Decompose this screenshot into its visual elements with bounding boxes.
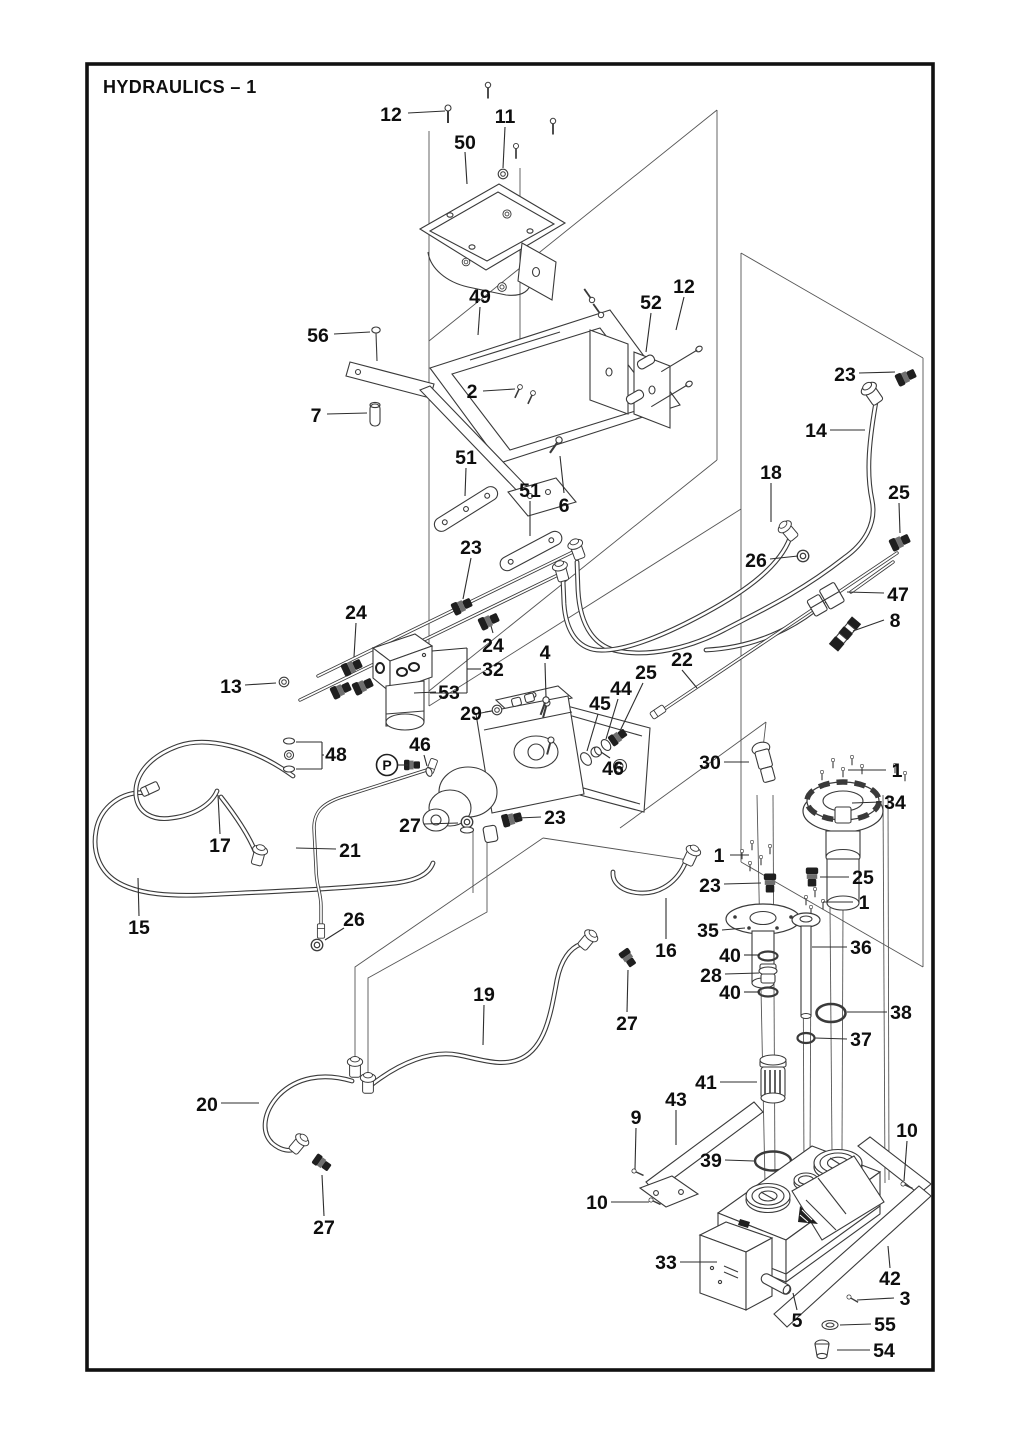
callout-leader-52 [646, 313, 651, 352]
callout-leader-46 [424, 755, 427, 766]
elbow-19 [576, 927, 601, 953]
level-tube-36 [792, 913, 820, 1019]
fitting-48 [284, 750, 293, 759]
callout-leader-3 [857, 1298, 894, 1300]
callout-leader-23 [859, 372, 895, 373]
callout-52: 52 [640, 292, 662, 314]
callout-15: 15 [128, 917, 150, 939]
fitting-30 [751, 740, 779, 783]
elbow-a [566, 537, 587, 562]
callout-49: 49 [469, 286, 491, 308]
callout-leader-56 [334, 332, 370, 334]
callout-26: 26 [343, 909, 365, 931]
fitting-23b [501, 810, 524, 828]
callout-38: 38 [890, 1002, 912, 1024]
pipe-21 [314, 768, 433, 928]
callout-leader-55 [840, 1324, 871, 1325]
callout-13: 13 [220, 676, 242, 698]
callout-14: 14 [805, 420, 827, 442]
callout-42: 42 [879, 1268, 901, 1290]
plug-13 [279, 677, 289, 687]
callout-12: 12 [673, 276, 695, 298]
callout-23: 23 [834, 364, 856, 386]
screw-cluster-1c [804, 887, 824, 915]
callout-36: 36 [850, 937, 872, 959]
fitting-27b [618, 947, 638, 968]
callout-51: 51 [519, 480, 541, 502]
callout-21: 21 [339, 840, 361, 862]
callout-18: 18 [760, 462, 782, 484]
callout-27: 27 [313, 1217, 335, 1239]
callout-bracket-line [432, 648, 467, 651]
callout-leader-13 [245, 683, 276, 685]
callout-leader-19 [483, 1005, 484, 1045]
bracket-43 [646, 1102, 763, 1192]
callout-12: 12 [380, 104, 402, 126]
coupling-21-bottom [317, 924, 324, 938]
callout-48: 48 [325, 744, 347, 766]
hose-20 [265, 1077, 352, 1150]
callout-40: 40 [719, 982, 741, 1004]
callout-30: 30 [699, 752, 721, 774]
nozzle-8 [829, 616, 861, 651]
callout-24: 24 [345, 602, 367, 624]
callout-25: 25 [635, 662, 657, 684]
port-marker-p: P [377, 755, 409, 776]
callout-leader-27 [627, 970, 628, 1012]
callout-43: 43 [665, 1089, 687, 1111]
callout-3: 3 [900, 1288, 911, 1310]
callout-37: 37 [850, 1029, 872, 1051]
callout-46: 46 [409, 734, 431, 756]
fitting-27c [311, 1153, 332, 1173]
callout-7: 7 [311, 405, 322, 427]
callout-11: 11 [495, 106, 516, 128]
washer-48b [284, 766, 295, 772]
callout-32: 32 [482, 659, 504, 681]
washer-55 [822, 1321, 838, 1330]
callout-1: 1 [714, 845, 725, 867]
fitting-23-top-right [894, 367, 918, 387]
filter-32-53 [373, 634, 432, 730]
callout-4: 4 [540, 642, 551, 664]
callout-leader-25 [899, 503, 900, 533]
washer-48a [284, 738, 295, 744]
callout-41: 41 [695, 1072, 717, 1094]
callout-22: 22 [671, 649, 693, 671]
nut-27a [461, 816, 473, 828]
hydraulics-diagram: HYDRAULICS – 1 [0, 0, 1024, 1435]
callout-leader-51 [465, 468, 466, 496]
elbow-14 [858, 379, 885, 408]
callout-27: 27 [616, 1013, 638, 1035]
callout-leader-39 [725, 1160, 754, 1161]
callout-45: 45 [589, 693, 611, 715]
callout-leader-42 [888, 1246, 890, 1268]
fitting-23d [764, 874, 776, 893]
nut-26b [311, 939, 323, 951]
callout-46: 46 [602, 758, 624, 780]
callout-leader-9 [635, 1128, 636, 1169]
callout-5: 5 [792, 1310, 803, 1332]
callout-leader-12 [408, 111, 445, 113]
callout-8: 8 [890, 610, 901, 632]
callout-leader-27 [322, 1175, 324, 1216]
callout-44: 44 [610, 678, 632, 700]
callout-leader-7 [327, 413, 367, 414]
screw-9 [631, 1168, 644, 1177]
fitting-23a [450, 596, 474, 616]
screw-3 [846, 1294, 859, 1304]
callout-56: 56 [307, 325, 329, 347]
callout-leader-12 [676, 297, 684, 330]
screw-cluster-1b [740, 840, 771, 871]
callout-29: 29 [460, 703, 482, 725]
callout-19: 19 [473, 984, 495, 1006]
callout-39: 39 [700, 1150, 722, 1172]
hose-15 [95, 793, 433, 896]
callout-34: 34 [884, 792, 906, 814]
o-ring-37 [798, 1033, 815, 1043]
callout-35: 35 [697, 920, 719, 942]
callout-51: 51 [455, 447, 477, 469]
callout-1: 1 [892, 760, 903, 782]
callout-leader-26 [770, 556, 798, 559]
callout-50: 50 [454, 132, 476, 154]
callout-leader-24 [491, 626, 493, 633]
callout-2: 2 [467, 381, 478, 403]
callout-9: 9 [631, 1107, 642, 1129]
callout-25: 25 [888, 482, 910, 504]
callout-40: 40 [719, 945, 741, 967]
callout-leader-50 [465, 152, 467, 184]
callout-leader-21 [296, 848, 336, 849]
parts-diagram-page: HYDRAULICS – 1 [0, 0, 1024, 1435]
callout-leader-11 [503, 127, 505, 168]
elbow-18 [775, 518, 800, 544]
page-title: HYDRAULICS – 1 [103, 77, 257, 97]
callout-24: 24 [482, 635, 504, 657]
callout-54: 54 [873, 1340, 895, 1362]
fitting-25-right [888, 532, 912, 552]
callout-33: 33 [655, 1252, 677, 1274]
elbow-20b [360, 1073, 375, 1094]
callout-1: 1 [859, 892, 870, 914]
nut-26a [797, 550, 809, 562]
fitting-24e [351, 676, 375, 696]
svg-text:P: P [382, 757, 391, 773]
callout-leader-23 [724, 883, 761, 884]
callout-10: 10 [586, 1192, 608, 1214]
callout-leader-17 [218, 795, 220, 834]
callout-23: 23 [544, 807, 566, 829]
callout-55: 55 [874, 1314, 896, 1336]
callout-17: 17 [209, 835, 231, 857]
callout-47: 47 [887, 584, 909, 606]
hose-14 [577, 396, 877, 653]
strainer-41 [760, 1055, 786, 1103]
callout-leader-24 [354, 623, 356, 657]
callout-leader-26 [325, 928, 344, 940]
nut-29 [492, 705, 502, 715]
fitting-25d [806, 868, 818, 887]
coupling-22 [650, 705, 667, 720]
plug-54 [815, 1340, 829, 1359]
callout-6: 6 [559, 495, 570, 517]
coupling-15 [140, 781, 160, 797]
elbow-19b [347, 1057, 362, 1078]
callout-leader-23 [463, 558, 471, 599]
fitting-28 [759, 964, 777, 983]
callout-10: 10 [896, 1120, 918, 1142]
callout-16: 16 [655, 940, 677, 962]
callout-leader-15 [138, 878, 139, 916]
bracket-50-assembly [420, 82, 565, 300]
callout-27: 27 [399, 815, 421, 837]
callout-23: 23 [699, 875, 721, 897]
callout-26: 26 [745, 550, 767, 572]
callout-leader-22 [682, 670, 697, 688]
callout-25: 25 [852, 867, 874, 889]
callout-leader-49 [478, 307, 480, 335]
callout-20: 20 [196, 1094, 218, 1116]
callout-23: 23 [460, 537, 482, 559]
